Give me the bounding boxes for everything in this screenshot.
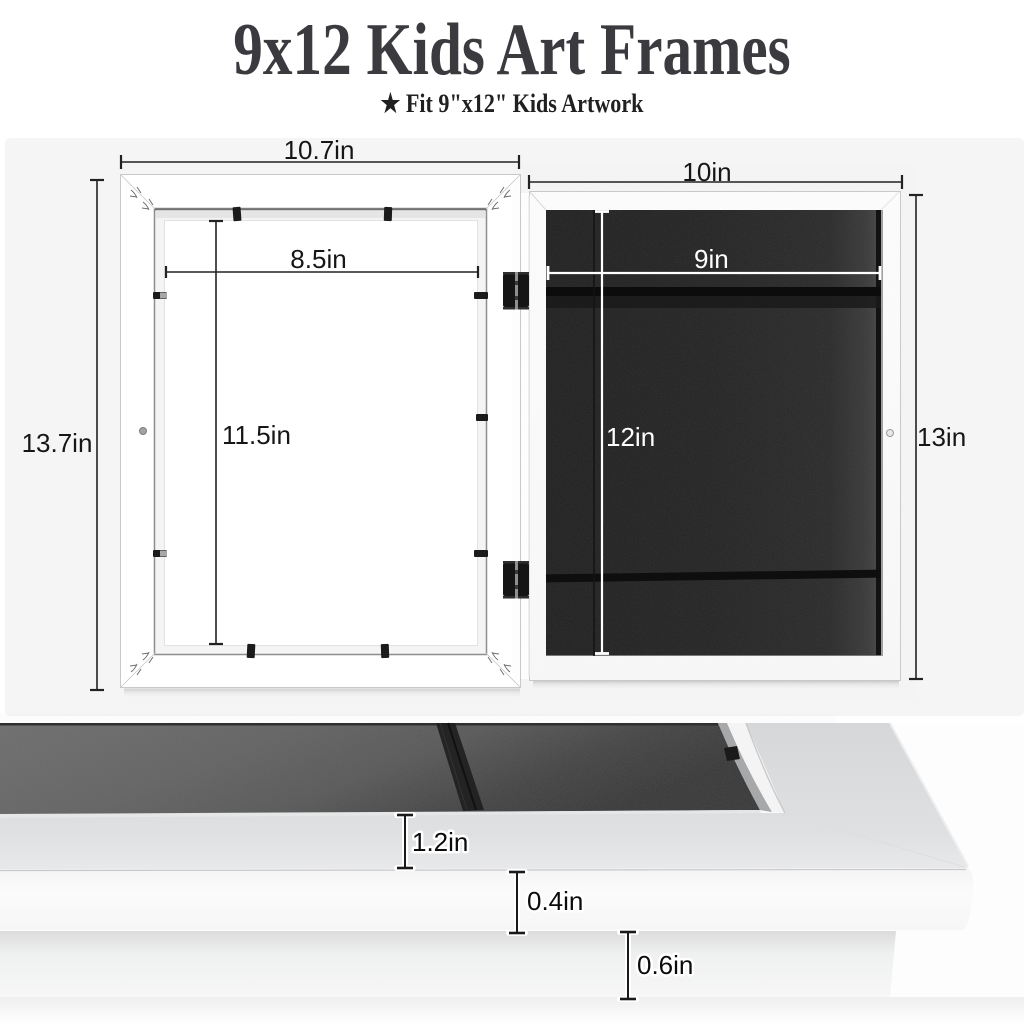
svg-text:8.5in: 8.5in [290,244,346,274]
svg-text:10in: 10in [682,157,731,187]
svg-text:11.5in: 11.5in [222,420,291,450]
svg-text:10.7in: 10.7in [284,135,355,165]
svg-text:0.6in: 0.6in [637,950,693,980]
svg-text:0.4in: 0.4in [527,886,583,916]
svg-text:13in: 13in [917,422,966,452]
svg-text:9in: 9in [694,244,729,274]
svg-text:13.7in: 13.7in [22,428,93,458]
svg-text:1.2in: 1.2in [412,827,468,857]
svg-text:12in: 12in [606,422,655,452]
